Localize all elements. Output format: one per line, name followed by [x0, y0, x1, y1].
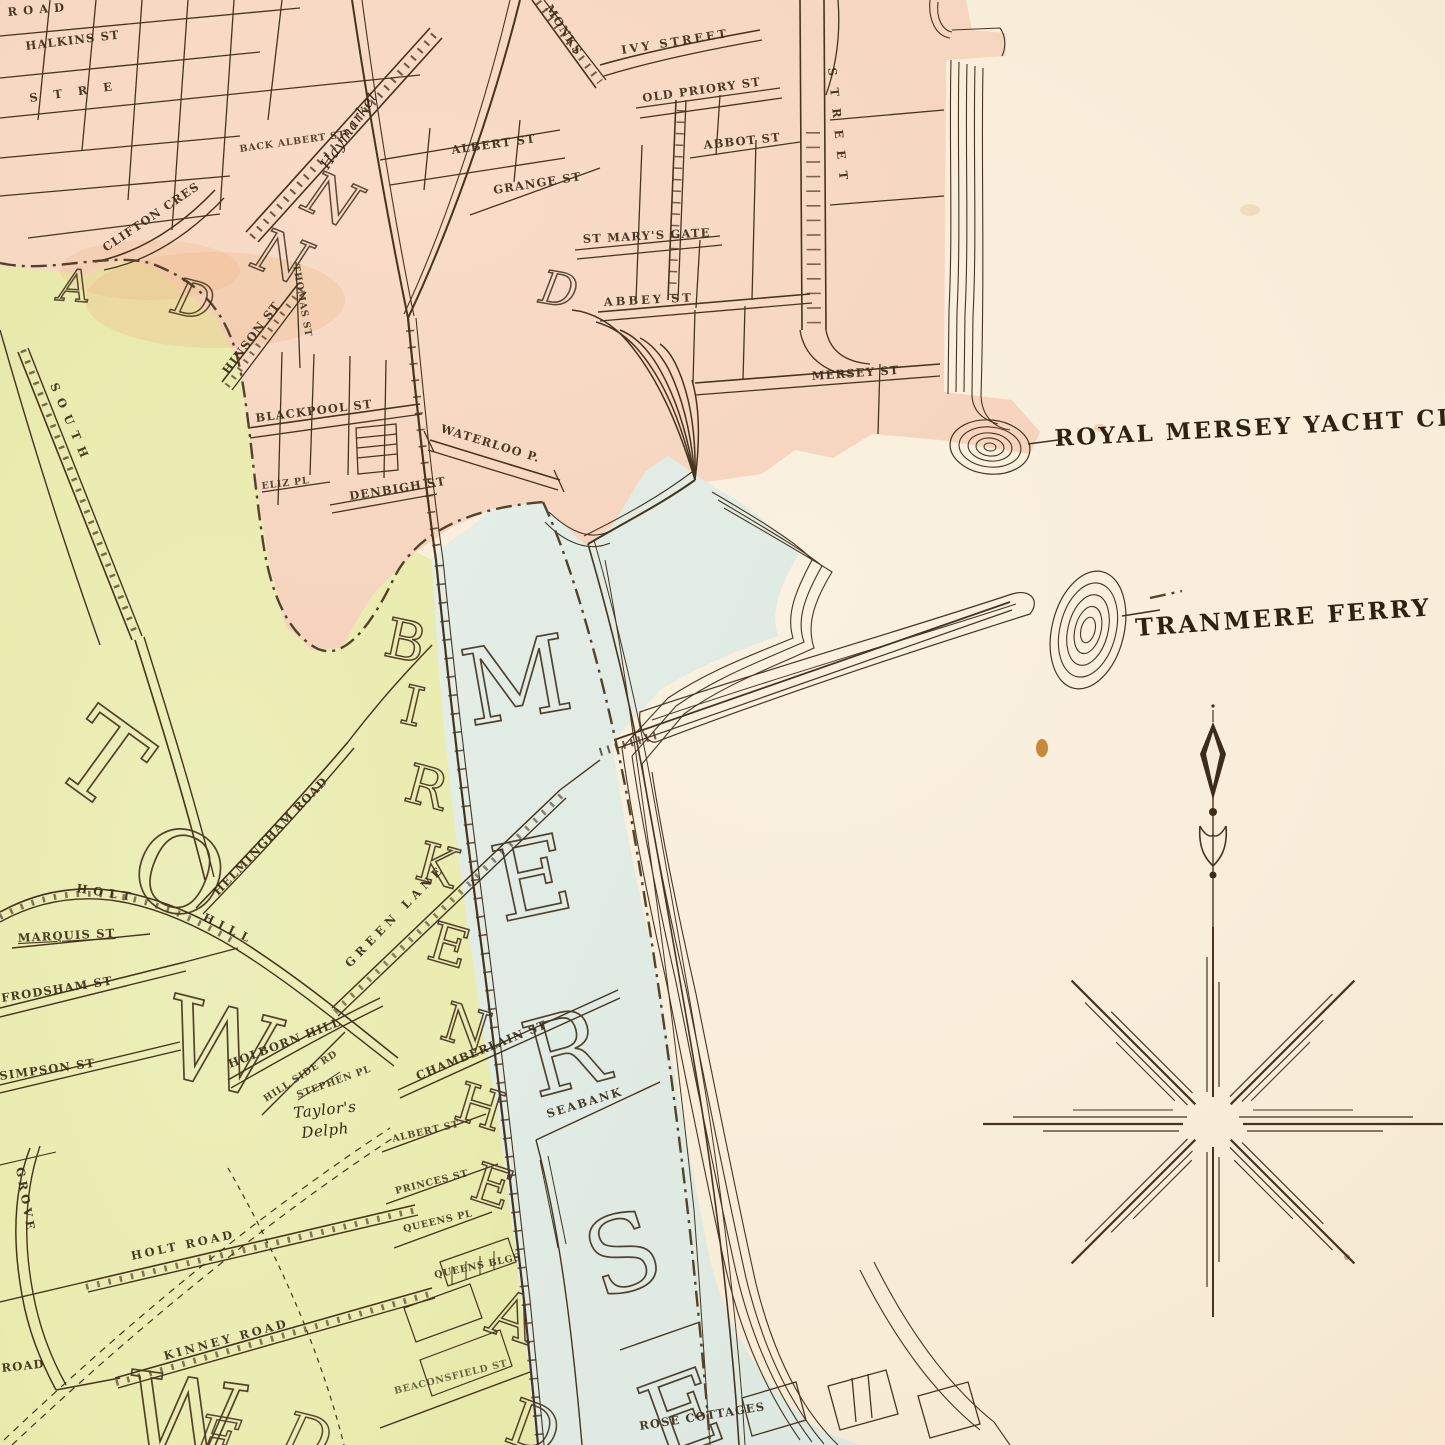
paper-stain	[1240, 204, 1260, 216]
big-letter: M	[453, 612, 580, 751]
vintage-map: M E R S E B I R K E N H E A D T O W N N …	[0, 0, 1445, 1445]
paper-stain	[1036, 739, 1048, 757]
map-canvas: M E R S E B I R K E N H E A D T O W N N …	[0, 0, 1445, 1445]
